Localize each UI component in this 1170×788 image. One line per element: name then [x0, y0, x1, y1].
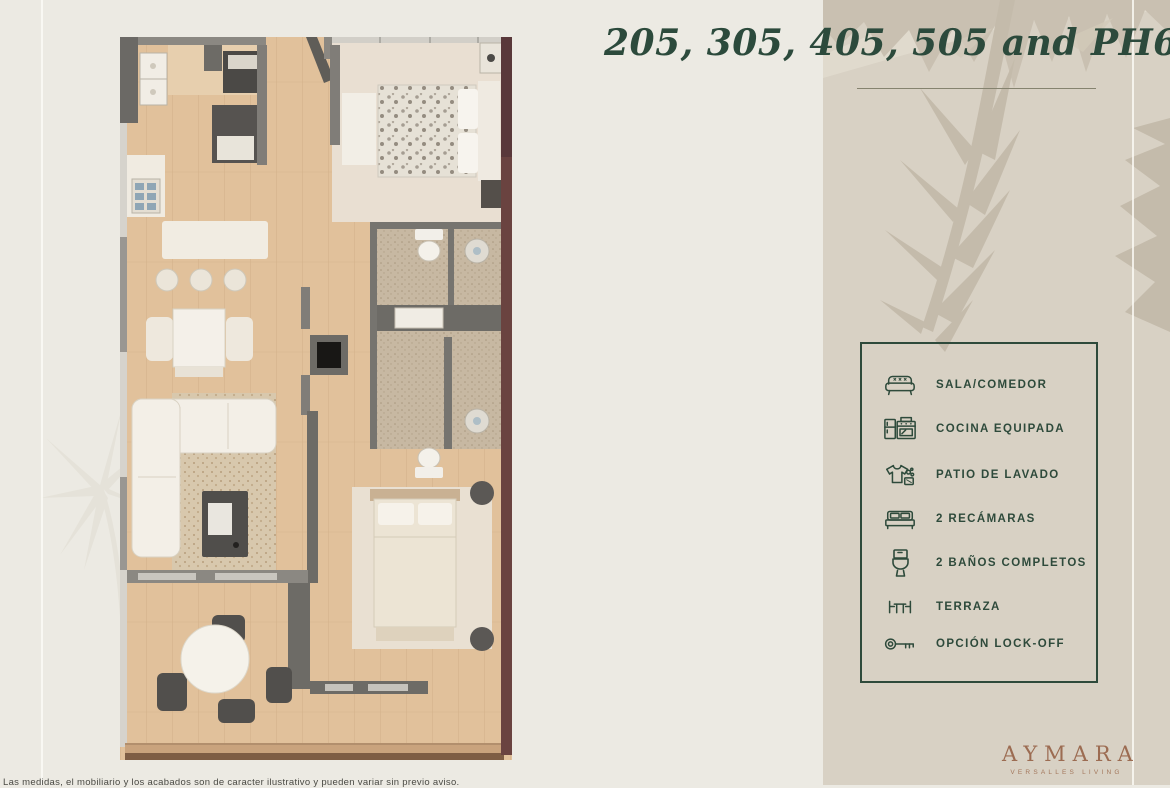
kitchen-icon	[880, 415, 920, 443]
laundry-icon	[880, 461, 920, 489]
feature-label: OPCIÓN LOCK-OFF	[936, 638, 1065, 650]
feature-label: PATIO DE LAVADO	[936, 469, 1060, 481]
terrace-table-icon	[880, 596, 920, 618]
feature-label: 2 BAÑOS COMPLETOS	[936, 557, 1087, 569]
page: { "page": { "title": "205, 305, 405, 505…	[0, 0, 1170, 785]
fold-line-right	[1132, 0, 1134, 785]
title-divider	[857, 88, 1096, 89]
sofa-icon	[880, 372, 920, 398]
key-icon	[880, 635, 920, 653]
feature-label: TERRAZA	[936, 601, 1001, 613]
feature-row-terraza: TERRAZA	[880, 596, 1090, 618]
feature-row-lock-off: OPCIÓN LOCK-OFF	[880, 635, 1090, 653]
feature-row-banos: 2 BAÑOS COMPLETOS	[880, 548, 1090, 578]
feature-row-cocina-equipada: COCINA EQUIPADA	[880, 415, 1090, 443]
brand-tagline: VERSALLES LIVING	[995, 769, 1135, 776]
feature-row-sala-comedor: SALA/COMEDOR	[880, 372, 1090, 398]
amenities-box: SALA/COMEDOR COCINA EQUIPADA	[860, 342, 1098, 683]
feature-label: 2 RECÁMARAS	[936, 513, 1036, 525]
page-title: 205, 305, 405, 505 and PH605	[604, 22, 1084, 64]
feature-label: COCINA EQUIPADA	[936, 423, 1065, 435]
feature-row-patio-de-lavado: PATIO DE LAVADO	[880, 461, 1090, 489]
brand-name: AYMARA	[995, 742, 1135, 766]
bed-icon	[880, 507, 920, 531]
brand-logo: AYMARA VERSALLES LIVING	[995, 742, 1135, 776]
floor-plan-image	[120, 37, 512, 760]
feature-row-recamaras: 2 RECÁMARAS	[880, 507, 1090, 531]
fold-line-left	[41, 0, 43, 785]
footer-disclaimer: Las medidas, el mobiliario y los acabado…	[3, 777, 423, 788]
feature-label: SALA/COMEDOR	[936, 379, 1047, 391]
toilet-icon	[880, 548, 920, 578]
